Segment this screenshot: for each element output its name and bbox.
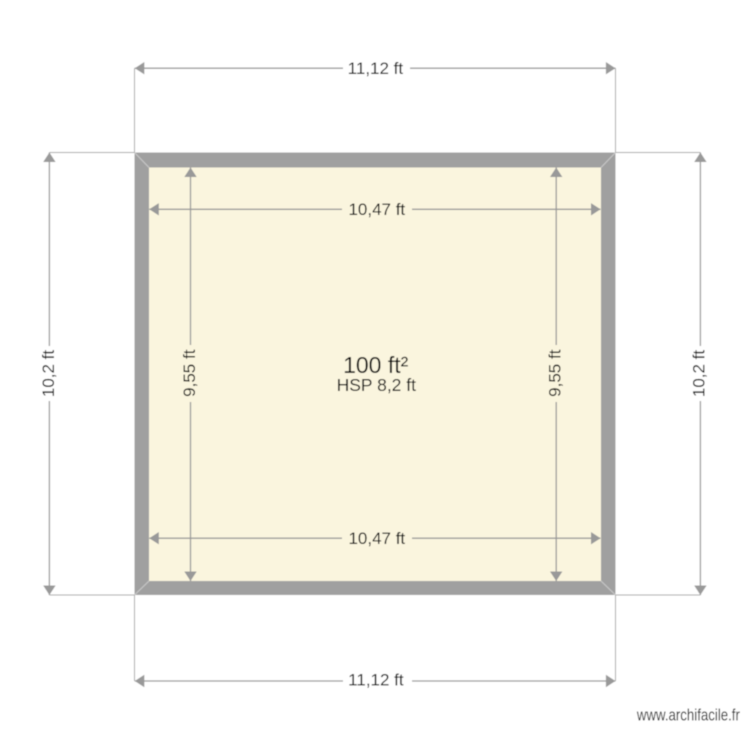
svg-text:10,2 ft: 10,2 ft (39, 350, 58, 398)
svg-text:9,55 ft: 9,55 ft (546, 349, 565, 397)
svg-text:HSP 8,2 ft: HSP 8,2 ft (337, 375, 417, 395)
svg-text:9,55 ft: 9,55 ft (180, 349, 199, 397)
svg-text:10,2 ft: 10,2 ft (690, 350, 709, 398)
svg-text:www.archifacile.fr: www.archifacile.fr (636, 706, 740, 724)
svg-text:10,47 ft: 10,47 ft (348, 200, 405, 219)
svg-text:11,12 ft: 11,12 ft (348, 671, 404, 690)
svg-text:10,47 ft: 10,47 ft (348, 529, 405, 548)
svg-text:11,12 ft: 11,12 ft (348, 59, 404, 78)
